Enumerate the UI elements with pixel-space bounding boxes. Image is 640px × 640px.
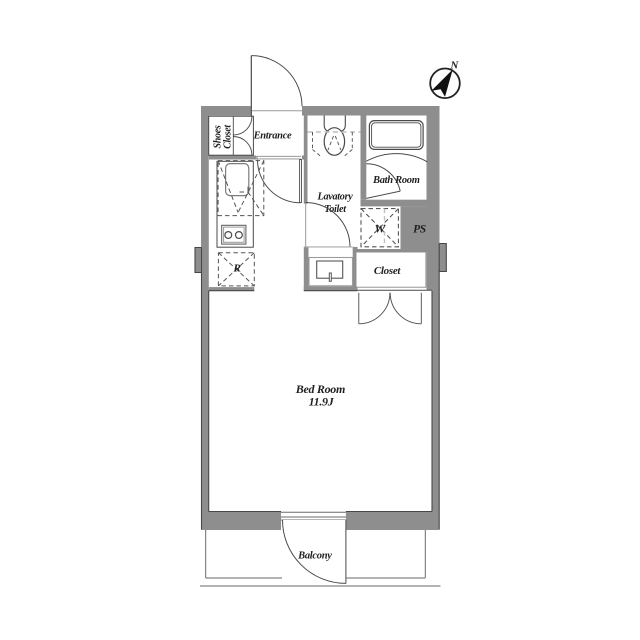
- svg-text:11.9J: 11.9J: [309, 394, 335, 408]
- svg-text:PS: PS: [413, 224, 426, 236]
- svg-text:Closet: Closet: [374, 265, 402, 277]
- svg-text:R: R: [232, 263, 240, 275]
- svg-text:W: W: [375, 222, 387, 236]
- svg-text:Balcony: Balcony: [297, 551, 332, 562]
- svg-text:Bath Room: Bath Room: [372, 175, 420, 186]
- svg-text:Lavatory: Lavatory: [317, 192, 354, 203]
- svg-text:ShoesCloset: ShoesCloset: [213, 124, 234, 149]
- svg-text:Toilet: Toilet: [324, 204, 347, 215]
- svg-text:Entrance: Entrance: [253, 130, 292, 141]
